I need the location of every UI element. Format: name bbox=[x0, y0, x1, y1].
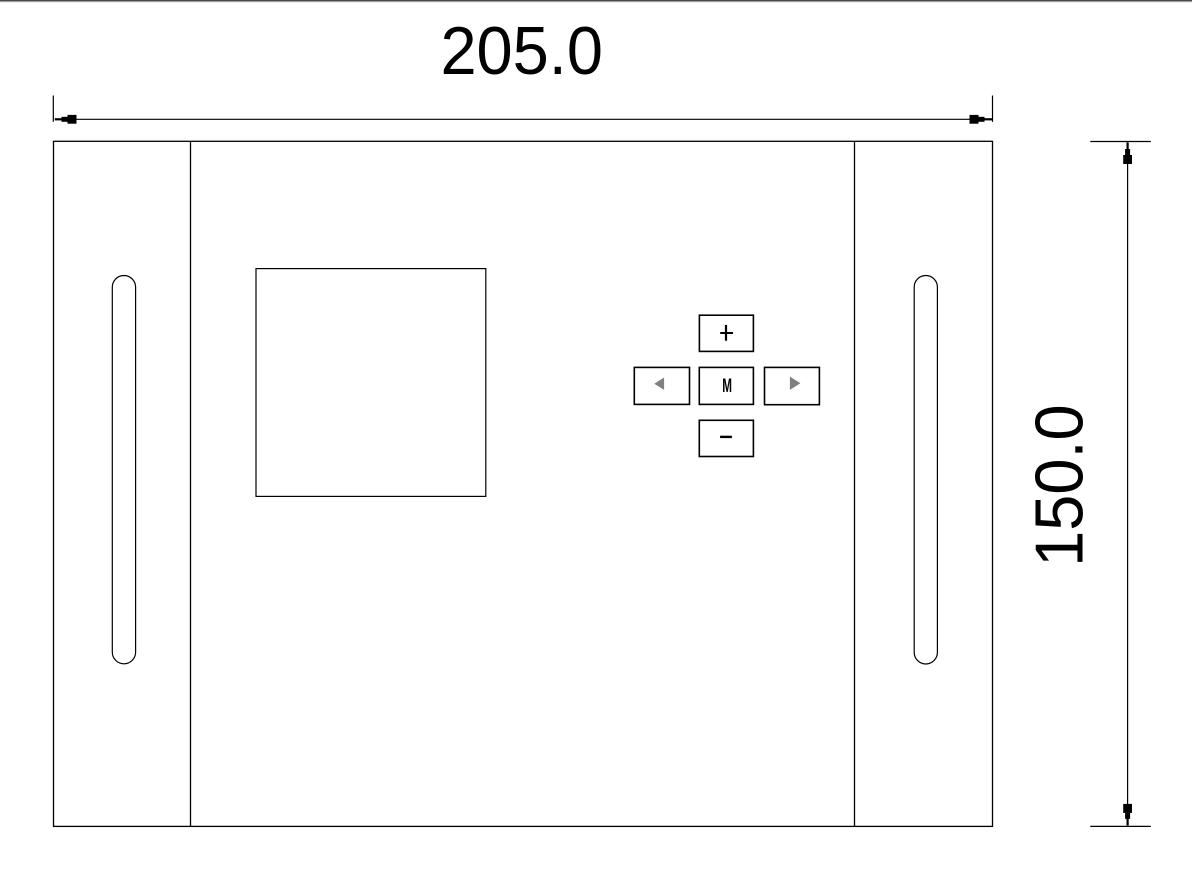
svg-text:150.0: 150.0 bbox=[1022, 404, 1098, 566]
svg-text:205.0: 205.0 bbox=[440, 13, 603, 89]
svg-text:M: M bbox=[722, 375, 732, 397]
